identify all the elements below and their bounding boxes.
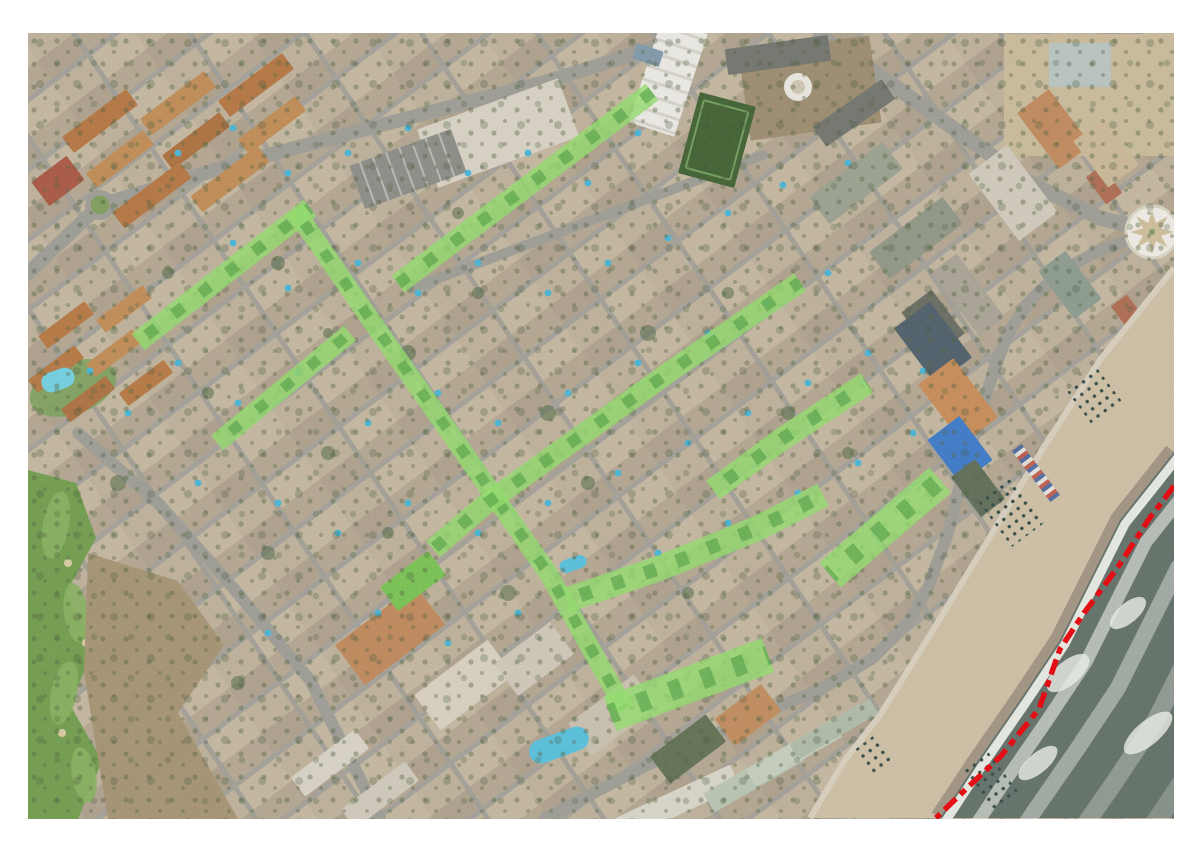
photo-grain xyxy=(28,33,1174,819)
photo-overlay-svg xyxy=(28,33,1174,819)
aerial-photo xyxy=(28,33,1174,819)
screenshot-frame xyxy=(0,0,1200,851)
